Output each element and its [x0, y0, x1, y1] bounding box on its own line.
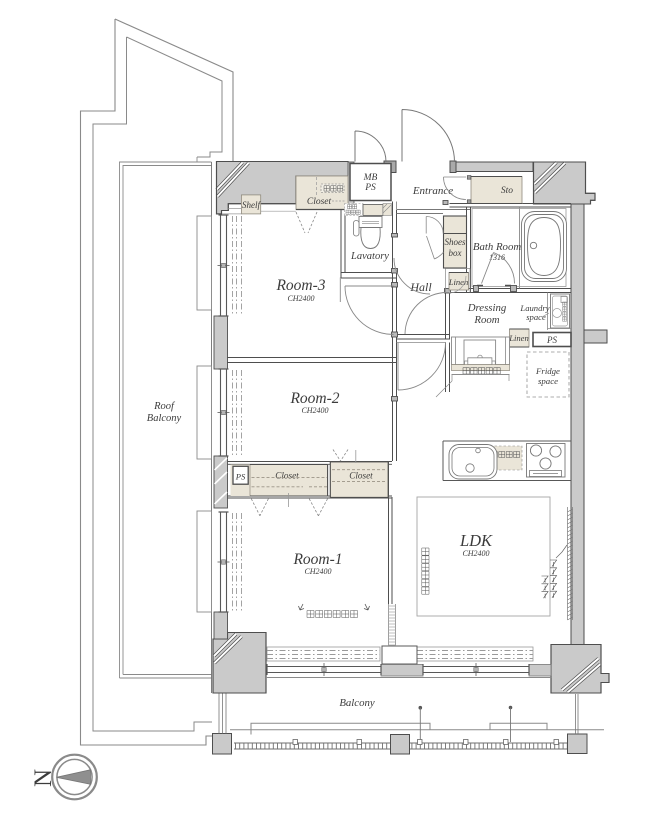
svg-text:Room-2: Room-2 — [289, 390, 339, 407]
svg-text:Room-3: Room-3 — [275, 277, 325, 294]
svg-text:Entrance: Entrance — [412, 185, 453, 197]
svg-text:Closet: Closet — [307, 197, 332, 207]
svg-text:Lavatory: Lavatory — [350, 251, 389, 262]
svg-text:CH2400: CH2400 — [301, 406, 328, 415]
svg-text:box: box — [449, 248, 462, 258]
svg-text:PS: PS — [235, 472, 246, 482]
svg-text:PS: PS — [364, 183, 376, 193]
svg-text:Closet: Closet — [349, 471, 373, 481]
svg-text:CH2400: CH2400 — [304, 567, 331, 576]
svg-text:MB: MB — [363, 173, 378, 183]
svg-text:N: N — [30, 769, 57, 787]
svg-text:Shoes: Shoes — [445, 237, 466, 247]
svg-text:CH2400: CH2400 — [287, 294, 314, 303]
svg-text:Bath Room: Bath Room — [473, 241, 521, 253]
svg-text:Roof: Roof — [153, 401, 176, 412]
svg-text:Sto: Sto — [501, 186, 513, 196]
svg-text:Dressing: Dressing — [467, 302, 507, 314]
svg-text:space: space — [538, 376, 558, 386]
svg-text:space: space — [526, 312, 546, 322]
svg-text:Shelf: Shelf — [242, 200, 261, 210]
svg-text:Room-1: Room-1 — [292, 551, 342, 568]
svg-text:LDK: LDK — [459, 531, 493, 550]
svg-text:Room: Room — [473, 314, 499, 326]
svg-text:PS: PS — [546, 335, 557, 345]
svg-text:CH2400: CH2400 — [462, 549, 489, 558]
svg-text:Closet: Closet — [275, 471, 299, 481]
svg-text:Balcony: Balcony — [339, 697, 375, 709]
svg-text:Fridge: Fridge — [535, 366, 560, 376]
svg-text:Linen: Linen — [508, 333, 529, 343]
svg-text:Hall: Hall — [409, 280, 432, 294]
svg-text:Balcony: Balcony — [147, 413, 182, 424]
